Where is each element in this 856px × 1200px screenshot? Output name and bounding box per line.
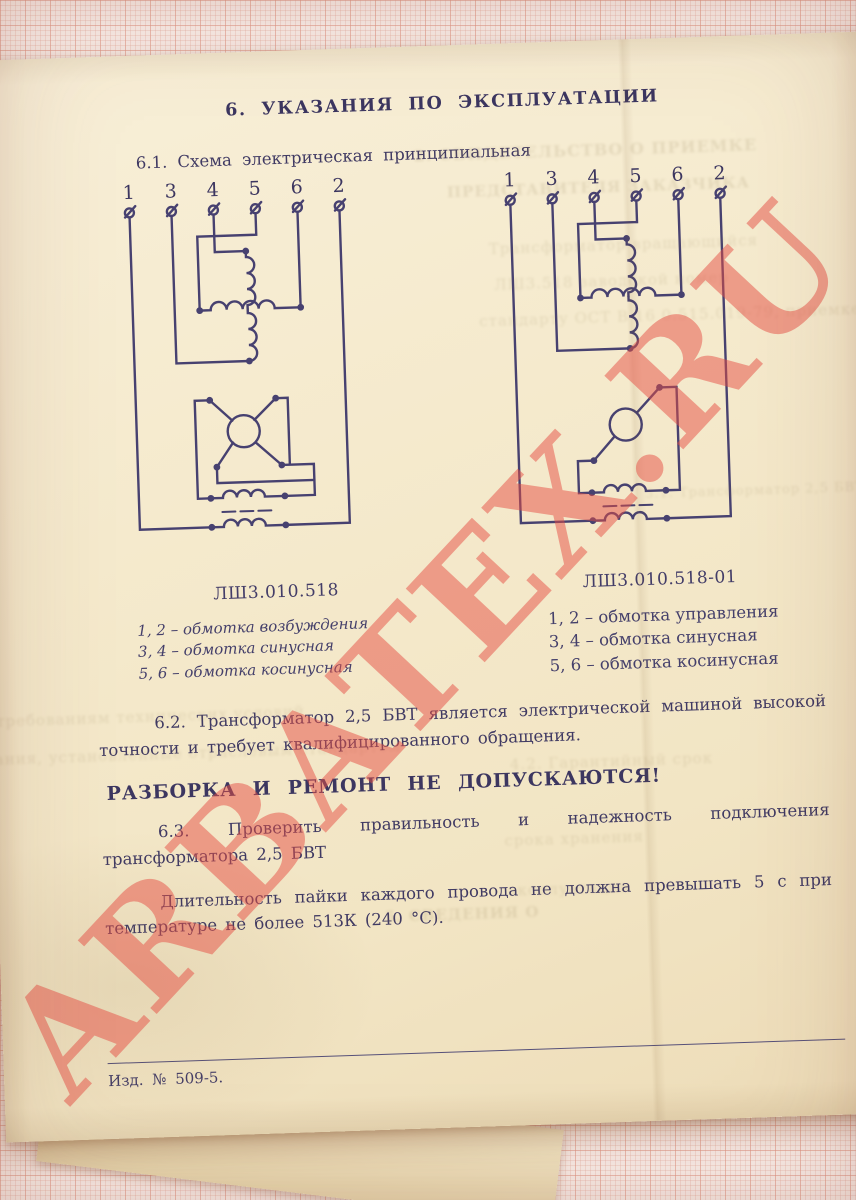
figure-caption: ЛШ3.010.518-01 bbox=[503, 566, 754, 594]
terminal-number: 3 bbox=[545, 168, 558, 190]
junction-dots bbox=[575, 233, 692, 524]
paragraph-6-3: 6.3. Проверить правильность и надежность… bbox=[102, 797, 831, 872]
figure-caption: ЛШ3.010.518 bbox=[122, 579, 373, 607]
terminal-number: 4 bbox=[587, 166, 600, 188]
terminal-number: 6 bbox=[290, 176, 303, 198]
schematic-wiring bbox=[506, 187, 737, 524]
terminal-numbers: 1 3 4 5 6 2 bbox=[503, 163, 726, 192]
figure-right: 1 3 4 5 6 2 bbox=[489, 163, 756, 679]
document-content: 2. СВИДЕТЕЛЬСТВО О ПРИЕМКЕ ПРЕДСТАВИТЕЛЯ… bbox=[0, 32, 856, 1143]
terminal-number: 1 bbox=[122, 182, 135, 204]
edition-number: Изд. № 509-5. bbox=[108, 1048, 846, 1090]
terminal-numbers: 1 3 4 5 6 2 bbox=[122, 175, 345, 204]
page-footer: Изд. № 509-5. bbox=[108, 1039, 846, 1090]
paragraph-6-2: 6.2. Трансформатор 2,5 БВТ является элек… bbox=[98, 688, 827, 763]
page-title: 6. УКАЗАНИЯ ПО ЭКСПЛУАТАЦИИ bbox=[78, 81, 806, 125]
schematic-lsh3-010-518: 1 3 4 5 6 2 bbox=[108, 175, 371, 583]
terminal-number: 3 bbox=[164, 180, 177, 202]
figure-left: 1 3 4 5 6 2 bbox=[108, 175, 375, 691]
schematic-lsh3-010-518-01: 1 3 4 5 6 2 bbox=[489, 163, 752, 571]
junction-dots bbox=[194, 246, 311, 531]
paragraph-soldering: Длительность пайки каждого провода не до… bbox=[104, 866, 833, 941]
terminal-symbols bbox=[125, 199, 346, 217]
schematic-wiring bbox=[125, 199, 356, 530]
document-page: 2. СВИДЕТЕЛЬСТВО О ПРИЕМКЕ ПРЕДСТАВИТЕЛЯ… bbox=[0, 32, 856, 1143]
terminal-number: 5 bbox=[629, 165, 642, 187]
warning-text: РАЗБОРКА И РЕМОНТ НЕ ДОПУСКАЮТСЯ! bbox=[106, 759, 828, 805]
schematic-diagrams-row: 1 3 4 5 6 2 bbox=[108, 160, 824, 691]
legend-right: 1, 2 – обмотка управления 3, 4 – обмотка… bbox=[504, 600, 756, 679]
terminal-number: 5 bbox=[248, 178, 261, 200]
terminal-symbols bbox=[506, 187, 727, 205]
terminal-number: 2 bbox=[332, 175, 345, 197]
terminal-number: 1 bbox=[503, 169, 516, 191]
terminal-number: 6 bbox=[671, 164, 684, 186]
terminal-number: 2 bbox=[713, 163, 726, 185]
photo-of-document: 2. СВИДЕТЕЛЬСТВО О ПРИЕМКЕ ПРЕДСТАВИТЕЛЯ… bbox=[0, 0, 856, 1200]
terminal-number: 4 bbox=[206, 179, 219, 201]
legend-left: 1, 2 – обмотка возбуждения 3, 4 – обмотк… bbox=[123, 613, 375, 685]
